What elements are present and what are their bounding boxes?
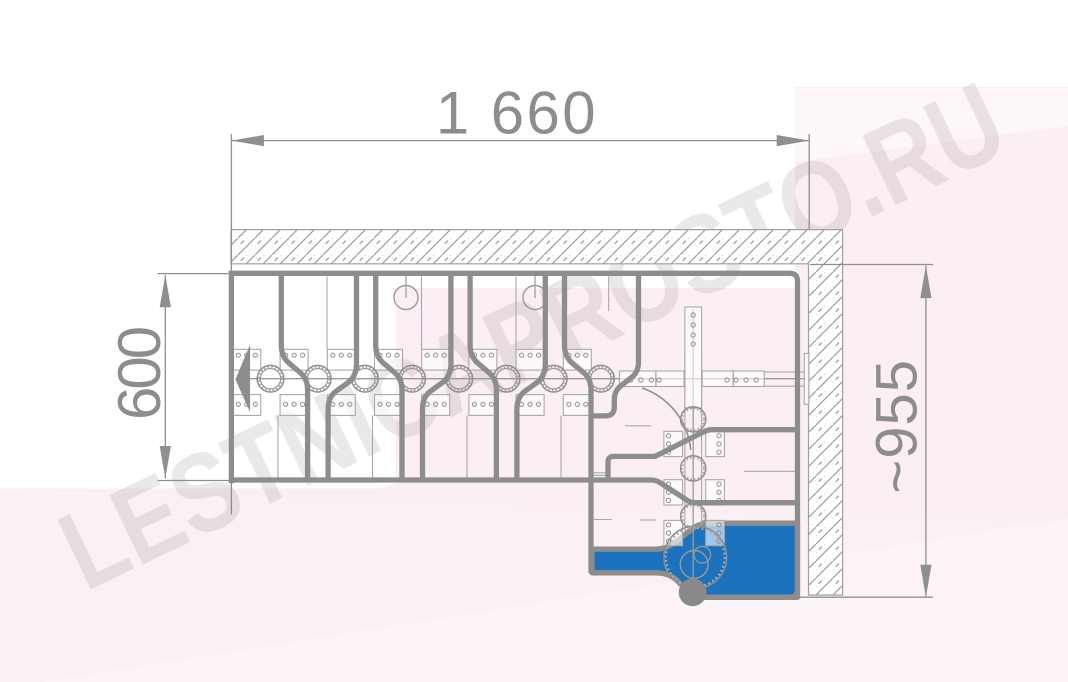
svg-text:600: 600 [106, 327, 173, 420]
svg-text:1 660: 1 660 [436, 80, 598, 147]
svg-text:~955: ~955 [865, 359, 930, 494]
